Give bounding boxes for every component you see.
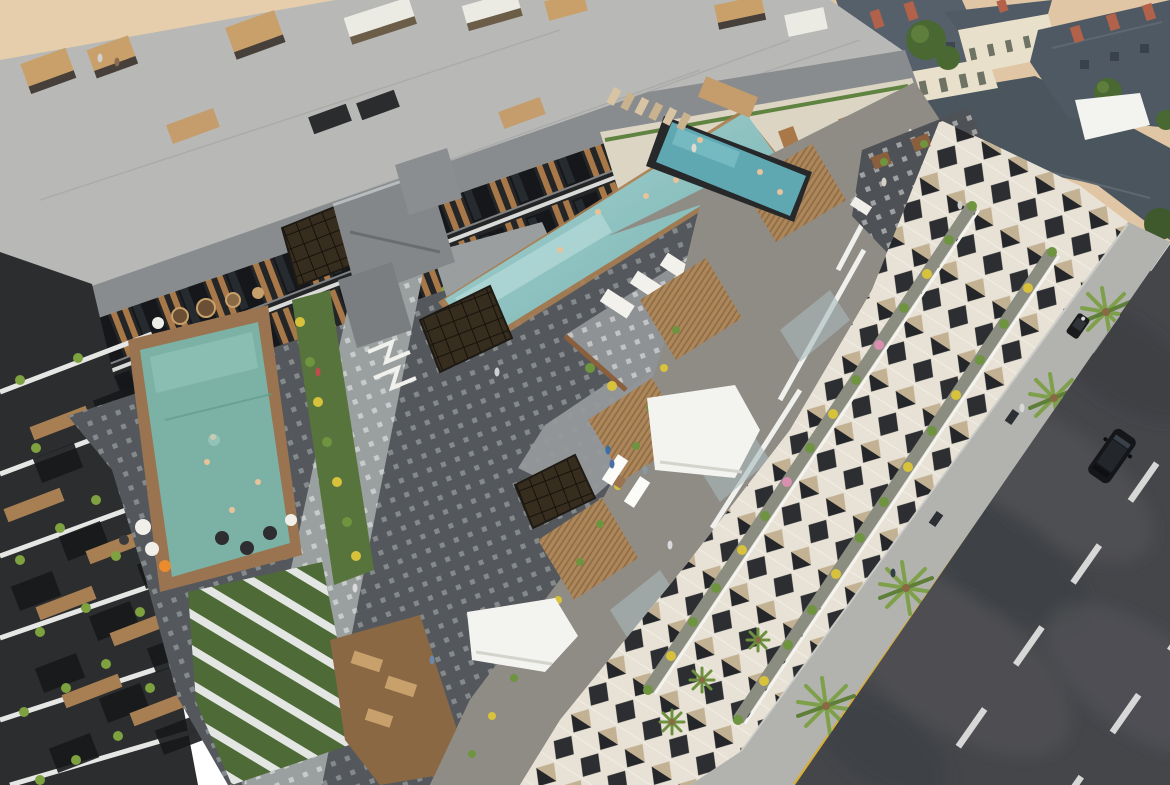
render-viewport [0,0,1170,785]
aerial-render [0,0,1170,785]
